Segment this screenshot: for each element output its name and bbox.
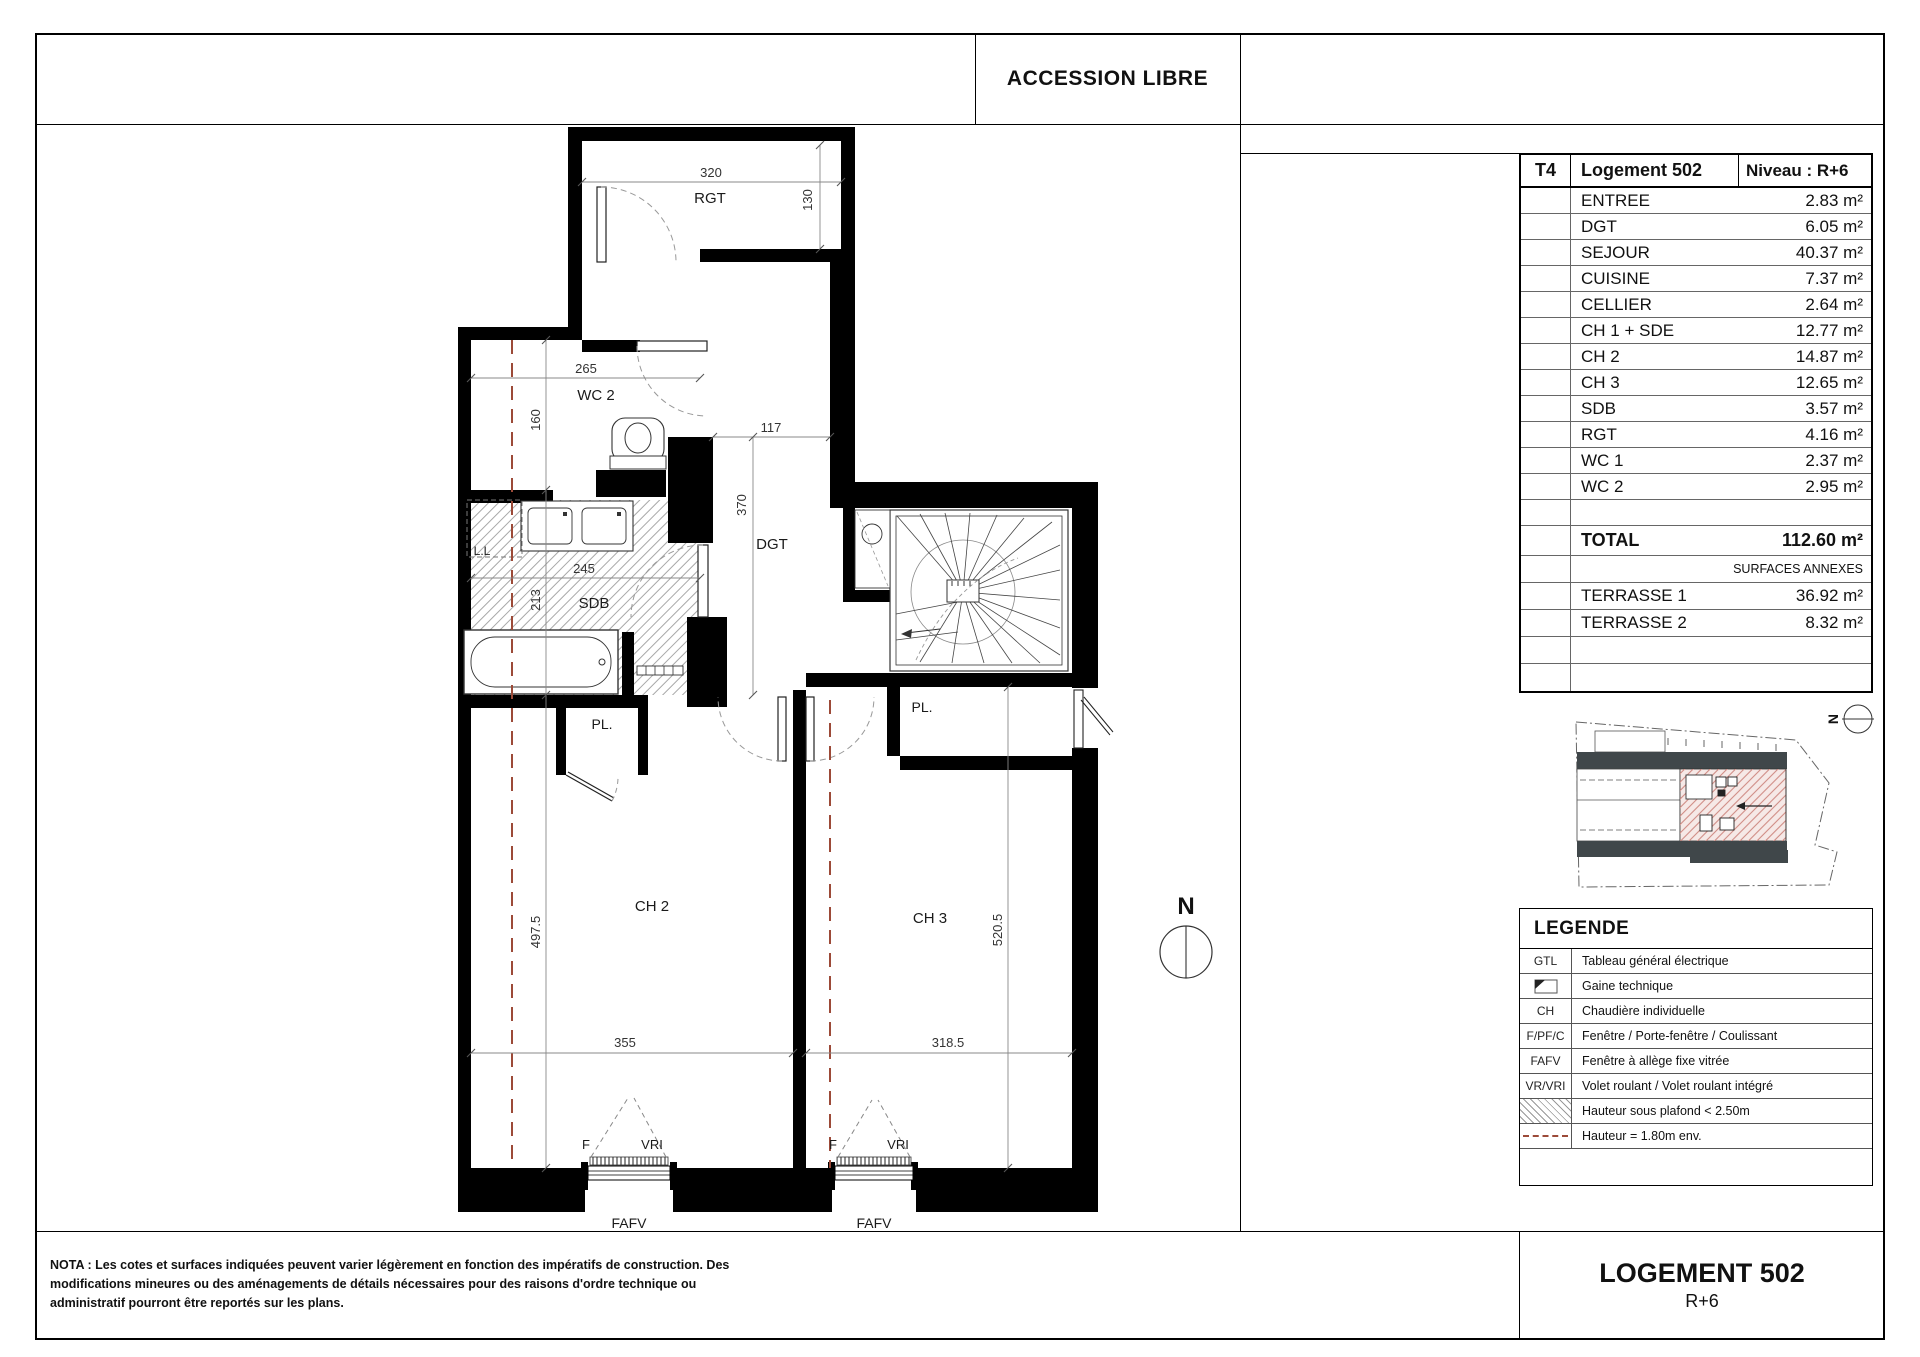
dim-265: 265 (575, 361, 597, 376)
annex-area: 36.92 m² (1796, 583, 1871, 609)
table-row: CH 312.65 m² (1521, 370, 1871, 396)
legend-label: Hauteur sous plafond < 2.50m (1572, 1099, 1872, 1123)
label-f1: F (582, 1137, 590, 1152)
unit-level: Niveau : R+6 (1739, 155, 1871, 186)
dim-355: 355 (614, 1035, 636, 1050)
dim-370: 370 (734, 494, 749, 516)
room-area: 7.37 m² (1805, 266, 1871, 291)
label-vri1: VRI (641, 1137, 663, 1152)
room-name: RGT (1571, 422, 1805, 447)
legend-label: Fenêtre / Porte-fenêtre / Coulissant (1572, 1024, 1872, 1048)
double-sink-icon (521, 501, 633, 551)
room-label-ch3: CH 3 (913, 910, 947, 927)
room-label-sdb: SDB (579, 595, 610, 612)
room-name: DGT (1571, 214, 1805, 239)
legend-row: F/PF/C Fenêtre / Porte-fenêtre / Couliss… (1520, 1024, 1872, 1049)
top-band-vline-right (1240, 33, 1241, 125)
room-area: 2.95 m² (1805, 474, 1871, 499)
low-ceiling-hatch-swatch (1520, 1099, 1572, 1123)
legend-label: Tableau général électrique (1572, 949, 1872, 973)
total-label: TOTAL (1571, 526, 1782, 555)
building-notch (1595, 731, 1665, 752)
boundary-ticks (1668, 738, 1776, 751)
room-name: CELLIER (1571, 292, 1805, 317)
legend-row: Hauteur sous plafond < 2.50m (1520, 1099, 1872, 1124)
room-area: 12.65 m² (1796, 370, 1871, 395)
table-row: ENTREE2.83 m² (1521, 188, 1871, 214)
room-label-rgt: RGT (694, 190, 726, 207)
room-name: WC 1 (1571, 448, 1805, 473)
table-row: RGT4.16 m² (1521, 422, 1871, 448)
title-block-level: R+6 (1519, 1291, 1885, 1312)
room-name: CH 1 + SDE (1571, 318, 1796, 343)
legend-row: VR/VRI Volet roulant / Volet roulant int… (1520, 1074, 1872, 1099)
table-row-empty (1521, 500, 1871, 526)
table-row: TERRASSE 136.92 m² (1521, 583, 1871, 610)
shower-cell (855, 510, 890, 588)
gaine-technique-icon (1520, 974, 1572, 998)
surface-table-header: T4 Logement 502 Niveau : R+6 (1521, 155, 1871, 188)
table-row: CUISINE7.37 m² (1521, 266, 1871, 292)
dim-318: 318.5 (932, 1035, 965, 1050)
room-label-wc2: WC 2 (577, 387, 615, 404)
table-row-empty (1521, 664, 1871, 691)
legend-key: FAFV (1520, 1049, 1572, 1073)
annex-area: 8.32 m² (1805, 610, 1871, 636)
legend-row: FAFV Fenêtre à allège fixe vitrée (1520, 1049, 1872, 1074)
room-label-pl-ch2: PL. (591, 716, 612, 732)
building-wall-top (1577, 752, 1787, 769)
plan-sheet: ACCESSION LIBRE T4 Logement 502 Niveau :… (0, 0, 1920, 1357)
legend-title: LEGENDE (1520, 909, 1872, 949)
legend-label: Gaine technique (1572, 974, 1872, 998)
room-area: 2.37 m² (1805, 448, 1871, 473)
table-row: CH 214.87 m² (1521, 344, 1871, 370)
legend-row: GTL Tableau général électrique (1520, 949, 1872, 974)
table-row: SEJOUR40.37 m² (1521, 240, 1871, 266)
room-area: 3.57 m² (1805, 396, 1871, 421)
table-row: CH 1 + SDE12.77 m² (1521, 318, 1871, 344)
table-row-annex-header: SURFACES ANNEXES (1521, 556, 1871, 583)
stairwell (890, 510, 1068, 671)
legend-label: Chaudière individuelle (1572, 999, 1872, 1023)
legend-label: Volet roulant / Volet roulant intégré (1572, 1074, 1872, 1098)
room-name: CH 3 (1571, 370, 1796, 395)
north-label: N (1177, 893, 1194, 920)
bottom-strip-line (35, 1231, 1885, 1232)
table-row: DGT6.05 m² (1521, 214, 1871, 240)
room-name: SEJOUR (1571, 240, 1796, 265)
towel-radiator-icon (637, 666, 683, 675)
table-row: SDB3.57 m² (1521, 396, 1871, 422)
table-row: WC 12.37 m² (1521, 448, 1871, 474)
room-area: 12.77 m² (1796, 318, 1871, 343)
room-name: SDB (1571, 396, 1805, 421)
bathtub-icon (464, 630, 618, 694)
room-name: CH 2 (1571, 344, 1796, 369)
legend-key: CH (1520, 999, 1572, 1023)
legend-row: Hauteur = 1.80m env. (1520, 1124, 1872, 1149)
label-fafv1: FAFV (611, 1215, 647, 1231)
room-name: ENTREE (1571, 188, 1805, 213)
dim-520: 520.5 (990, 914, 1005, 947)
room-label-dgt: DGT (756, 536, 788, 553)
room-label-ll: L.L (474, 544, 491, 558)
table-extension-line (1240, 153, 1519, 154)
table-row: WC 22.95 m² (1521, 474, 1871, 500)
annex-header: SURFACES ANNEXES (1571, 556, 1871, 582)
dim-245: 245 (573, 561, 595, 576)
title-block: LOGEMENT 502 R+6 (1519, 1258, 1885, 1312)
table-row: TERRASSE 28.32 m² (1521, 610, 1871, 637)
annex-name: TERRASSE 1 (1571, 583, 1796, 609)
label-fafv2: FAFV (856, 1215, 892, 1231)
legend-key: VR/VRI (1520, 1074, 1572, 1098)
room-area: 2.83 m² (1805, 188, 1871, 213)
nota-text: NOTA : Les cotes et surfaces indiquées p… (50, 1256, 774, 1314)
room-area: 40.37 m² (1796, 240, 1871, 265)
north-compass: N (1160, 893, 1212, 978)
table-row-empty (1521, 637, 1871, 664)
room-area: 4.16 m² (1805, 422, 1871, 447)
label-vri2: VRI (887, 1137, 909, 1152)
dim-117: 117 (761, 420, 782, 435)
table-row: CELLIER2.64 m² (1521, 292, 1871, 318)
height-180-dash-swatch (1520, 1124, 1572, 1148)
table-row-total: TOTAL112.60 m² (1521, 526, 1871, 556)
room-area: 14.87 m² (1796, 344, 1871, 369)
site-thumbnail: N (1540, 695, 1885, 905)
total-area: 112.60 m² (1782, 526, 1871, 555)
room-area: 2.64 m² (1805, 292, 1871, 317)
legend-label: Fenêtre à allège fixe vitrée (1572, 1049, 1872, 1073)
dim-320: 320 (700, 165, 722, 180)
dim-160: 160 (528, 409, 543, 431)
legend-row: CH Chaudière individuelle (1520, 999, 1872, 1024)
room-area: 6.05 m² (1805, 214, 1871, 239)
unit-type: T4 (1521, 155, 1571, 186)
title-block-unit: LOGEMENT 502 (1519, 1258, 1885, 1289)
legend-label: Hauteur = 1.80m env. (1572, 1124, 1872, 1148)
floor-plan-svg: 320 130 265 160 117 370 245 213 497.5 35… (35, 125, 1240, 1231)
room-name: CUISINE (1571, 266, 1805, 291)
label-f2: F (829, 1137, 837, 1152)
unit-interior-room (1686, 775, 1712, 799)
right-panel-divider (1240, 125, 1241, 1231)
unit-name: Logement 502 (1571, 155, 1739, 186)
room-label-pl-ch3: PL. (911, 699, 932, 715)
thumbnail-north-label: N (1825, 714, 1841, 724)
surface-table: T4 Logement 502 Niveau : R+6 ENTREE2.83 … (1519, 153, 1873, 693)
toilet-icon (610, 418, 666, 469)
accession-banner: ACCESSION LIBRE (975, 33, 1240, 125)
legend-key: F/PF/C (1520, 1024, 1572, 1048)
legend-row: Gaine technique (1520, 974, 1872, 999)
annex-name: TERRASSE 2 (1571, 610, 1805, 636)
room-label-ch2: CH 2 (635, 898, 669, 915)
room-name: WC 2 (1571, 474, 1805, 499)
dim-497: 497.5 (528, 916, 543, 949)
legend-box: LEGENDE GTL Tableau général électrique G… (1519, 908, 1873, 1186)
building-wall-bottom-step (1690, 850, 1788, 863)
dim-130: 130 (800, 189, 815, 211)
dim-213: 213 (528, 589, 543, 611)
legend-key: GTL (1520, 949, 1572, 973)
